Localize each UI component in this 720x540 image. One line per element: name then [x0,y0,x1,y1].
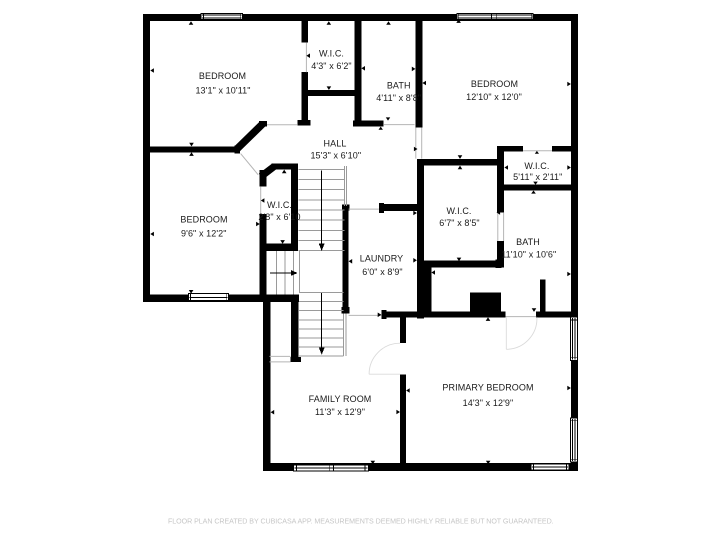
svg-text:5'11" x 2'11": 5'11" x 2'11" [513,172,562,182]
svg-text:11'3" x 12'9": 11'3" x 12'9" [315,407,365,417]
svg-text:6'7" x 8'5": 6'7" x 8'5" [439,218,479,228]
svg-text:FAMILY ROOM: FAMILY ROOM [309,394,372,404]
svg-text:BEDROOM: BEDROOM [199,71,246,81]
svg-text:PRIMARY BEDROOM: PRIMARY BEDROOM [442,383,533,393]
svg-text:BEDROOM: BEDROOM [180,215,227,225]
svg-text:W.I.C.: W.I.C. [446,206,471,216]
svg-text:6'0" x 8'9": 6'0" x 8'9" [362,267,402,277]
svg-text:4'11" x 8'8": 4'11" x 8'8" [376,93,421,103]
svg-text:BATH: BATH [387,81,411,91]
svg-text:LAUNDRY: LAUNDRY [360,254,404,264]
svg-text:W.I.C.: W.I.C. [524,161,549,171]
svg-text:FLOOR PLAN CREATED BY CUBICASA: FLOOR PLAN CREATED BY CUBICASA APP. MEAS… [168,518,554,526]
svg-text:W.I.C.: W.I.C. [319,49,344,59]
svg-text:11'10" x 10'6": 11'10" x 10'6" [501,250,556,260]
svg-text:13'1" x 10'11": 13'1" x 10'11" [195,85,250,95]
svg-text:9'6" x 12'2": 9'6" x 12'2" [181,228,227,238]
svg-text:BATH: BATH [516,237,540,247]
svg-text:W.I.C.: W.I.C. [267,200,292,210]
svg-text:4'3" x 6'2": 4'3" x 6'2" [311,61,351,71]
svg-text:BEDROOM: BEDROOM [471,79,518,89]
svg-text:2'8" x 6'10: 2'8" x 6'10 [258,212,300,222]
svg-text:14'3" x 12'9": 14'3" x 12'9" [463,398,514,408]
svg-text:12'10" x 12'0": 12'10" x 12'0" [466,92,522,102]
svg-text:HALL: HALL [324,139,347,149]
svg-text:15'3" x 6'10": 15'3" x 6'10" [310,151,361,161]
